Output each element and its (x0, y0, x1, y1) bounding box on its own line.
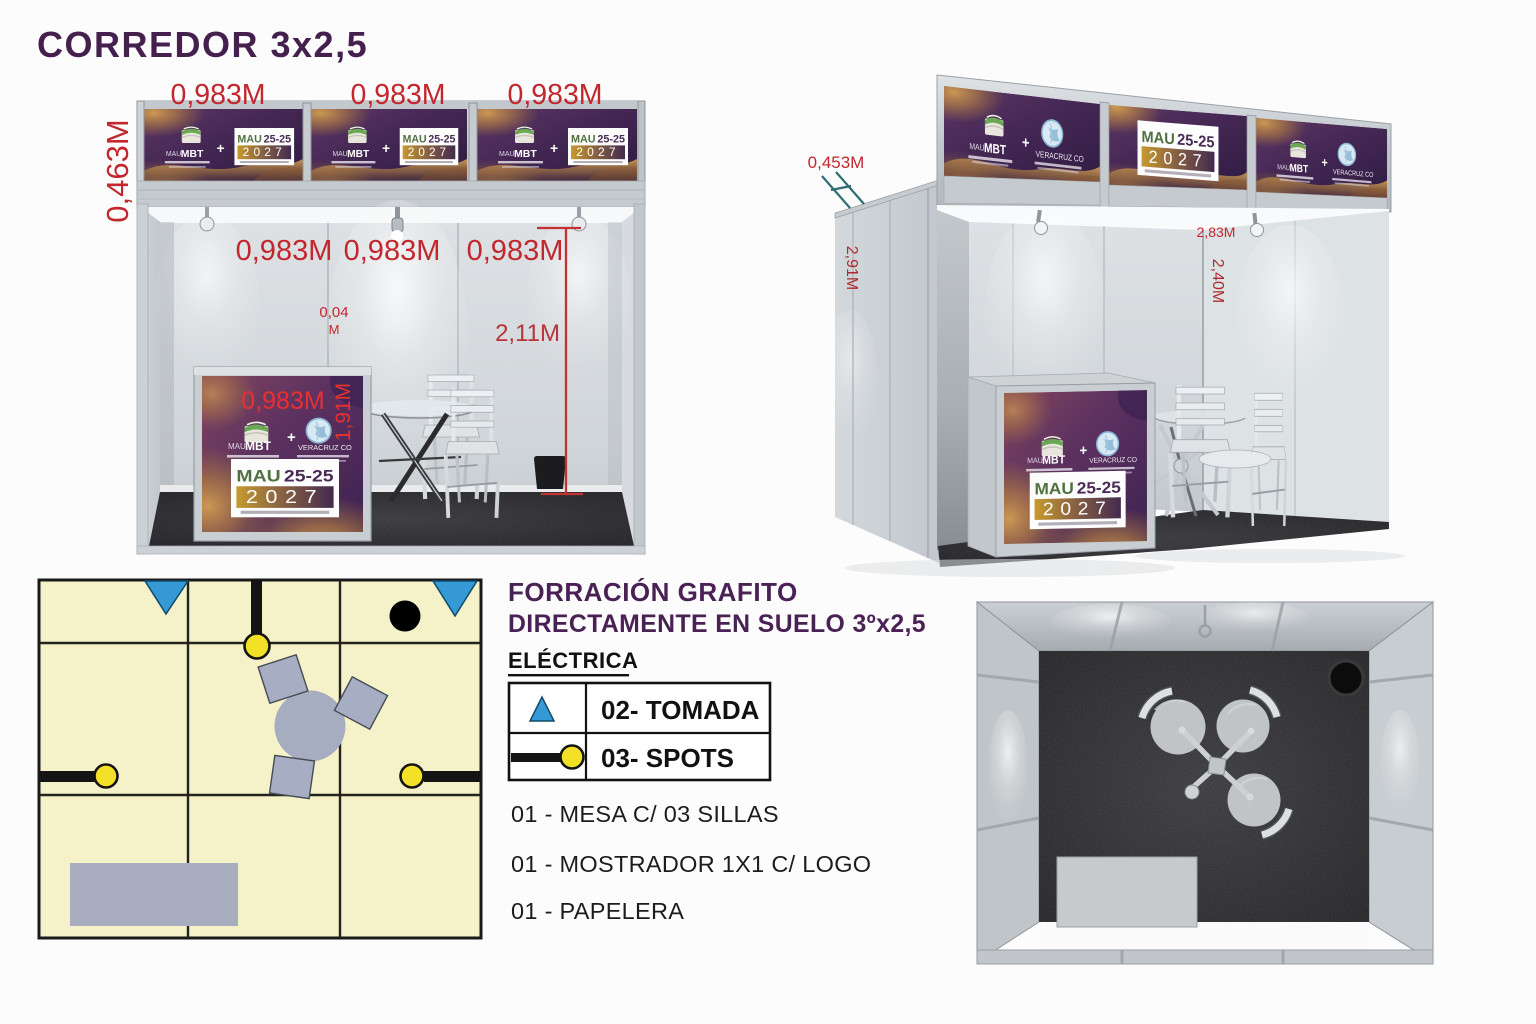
svg-text:0,983M: 0,983M (170, 79, 265, 111)
svg-text:0,983M: 0,983M (241, 387, 324, 415)
svg-text:0,04: 0,04 (319, 304, 348, 321)
svg-text:M: M (329, 322, 340, 337)
svg-text:02- TOMADA: 02- TOMADA (601, 695, 760, 725)
svg-text:ELÉCTRICA: ELÉCTRICA (508, 648, 638, 673)
svg-text:FORRACIÓN GRAFITO: FORRACIÓN GRAFITO (508, 577, 798, 607)
svg-text:DIRECTAMENTE EN SUELO 3ºx2,5: DIRECTAMENTE EN SUELO 3ºx2,5 (508, 611, 926, 638)
svg-text:01 - MESA C/ 03 SILLAS: 01 - MESA C/ 03 SILLAS (511, 801, 779, 827)
svg-text:0,983M: 0,983M (236, 235, 333, 267)
svg-text:1,91M: 1,91M (332, 383, 355, 441)
svg-text:0,983M: 0,983M (344, 235, 441, 267)
svg-text:0,453M: 0,453M (808, 153, 865, 172)
svg-text:0,983M: 0,983M (467, 235, 564, 267)
svg-text:0,983M: 0,983M (350, 79, 445, 111)
svg-text:2,40M: 2,40M (1209, 259, 1226, 303)
svg-text:0,983M: 0,983M (507, 79, 602, 111)
svg-text:0,463M: 0,463M (100, 119, 135, 222)
svg-text:01 - MOSTRADOR 1X1 C/ LOGO: 01 - MOSTRADOR 1X1 C/ LOGO (511, 851, 871, 877)
svg-text:2,91M: 2,91M (843, 246, 860, 290)
svg-text:03- SPOTS: 03- SPOTS (601, 743, 734, 773)
svg-text:01 - PAPELERA: 01 - PAPELERA (511, 898, 684, 924)
svg-text:CORREDOR 3x2,5: CORREDOR 3x2,5 (37, 24, 368, 65)
svg-text:2,11M: 2,11M (495, 320, 560, 347)
svg-text:2,83M: 2,83M (1197, 224, 1236, 240)
